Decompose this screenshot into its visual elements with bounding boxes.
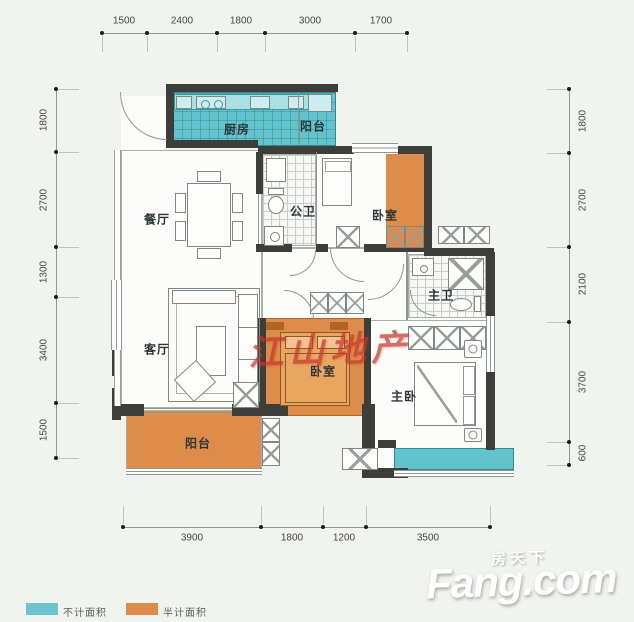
basin-bowl [270,232,280,242]
dimension-line [123,527,490,528]
extension-line [59,247,79,248]
dimension-tick [215,31,219,35]
dimension-tick [405,31,409,35]
wardrobe-cell [405,226,424,248]
wall-line [258,194,259,248]
extension-line [547,442,567,443]
extension-line [355,36,356,52]
nightstand [464,340,482,358]
window [111,280,122,350]
fang-logo-wordmark: Fang.com [425,554,617,609]
kitchen-sink [250,96,270,109]
kitchen-balcony-divider [298,92,299,144]
dimension-tick [54,456,58,460]
legend-swatch-half-counted [126,603,158,615]
closet-cell [328,292,346,314]
closet-cell [310,292,328,314]
extension-line [59,403,79,404]
dining-chair [175,193,186,213]
column-cell [262,418,280,442]
nightstand [464,428,482,442]
extension-line [490,506,491,524]
wall-line [406,252,408,320]
dimension-tick [364,525,368,529]
dimension-tick [488,525,492,529]
dimension-tick [567,87,571,91]
stove-burner [201,100,210,109]
dimension-label: 3000 [299,16,321,27]
dimension-label: 1300 [39,261,50,283]
dining-chair [232,221,243,241]
extension-line [102,36,103,52]
extension-line [59,458,79,459]
balcony-window-rail [126,468,262,475]
pillow [325,161,351,172]
dimension-tick [567,320,571,324]
extension-line [147,36,148,52]
wall-segment [120,404,144,416]
extension-line [407,36,408,52]
sofa-top [172,290,236,304]
wall-segment [424,146,432,256]
dimension-tick [54,401,58,405]
dimension-label: 1800 [39,109,50,131]
extension-line [261,506,262,524]
dimension-label: 2700 [578,189,589,211]
dimension-label: 600 [578,445,589,462]
basin-bowl [420,265,428,273]
dimension-label: 2400 [171,16,193,27]
closet-cell [346,292,364,314]
fang-logo: 房天下 Fang.com [425,542,627,619]
dining-chair [232,193,243,213]
room-label-living: 客厅 [144,341,170,358]
floorplan-image: 1500 2400 1800 3000 1700 1800 2700 1300 … [0,0,634,622]
dining-chair [197,171,221,182]
wardrobe-cell [336,226,360,248]
extension-line [123,506,124,524]
pillow [463,396,475,425]
bay-window-area [394,448,514,470]
dimension-tick [567,245,571,249]
dimension-label: 1200 [333,533,355,544]
kitchen-cabinet [288,96,304,109]
wall-segment [486,252,495,316]
toilet-tank [474,296,481,312]
extension-line [547,247,567,248]
extension-line [547,153,567,154]
extension-line [59,89,79,90]
wall-segment [166,84,174,142]
extension-line [323,506,324,524]
pillow [463,366,475,395]
window [486,316,495,372]
dimension-label: 1800 [230,16,252,27]
kitchen-cabinet [176,96,192,109]
legend-swatch-not-counted [26,603,58,615]
stove-burner [214,100,223,109]
cabinet-cell [464,226,490,244]
dining-chair [197,248,221,259]
extension-line [217,36,218,52]
dimension-tick [54,150,58,154]
extension-line [366,506,367,524]
cabinet-cell [438,226,464,244]
wardrobe-cell [434,326,460,350]
sliding-door-line [144,408,232,409]
dimension-label: 1500 [39,419,50,441]
ac-unit-box [342,448,378,470]
sliding-door-line [144,412,232,413]
dimension-line [569,89,570,465]
shower [448,258,484,290]
stove [196,96,226,109]
extension-line [59,297,79,298]
exterior-wall-thin [114,150,121,406]
wall-segment [486,372,495,450]
room-label-master-bedroom: 主卧 [391,388,417,405]
room-label-dining: 餐厅 [144,211,170,228]
room-label-kitchen: 厨房 [224,121,250,138]
wall-segment [166,140,258,148]
bay-window-rail [394,470,514,477]
extension-line [265,36,266,52]
extension-line [547,89,567,90]
dimension-label: 1700 [370,16,392,27]
dimension-label: 1500 [113,16,135,27]
dimension-label: 2700 [39,189,50,211]
blanket-fold [417,365,457,423]
fridge [308,94,332,112]
tv-cabinet [233,382,259,408]
washing-machine [266,158,286,182]
dimension-tick [54,245,58,249]
dimension-label: 3900 [181,533,203,544]
dimension-label: 3700 [578,371,589,393]
extension-line [547,322,567,323]
agency-watermark: 江山地产 [247,319,413,376]
wardrobe-cell [386,226,405,248]
toilet [268,196,284,214]
extension-line [547,465,567,466]
dimension-tick [353,31,357,35]
wall-segment [424,248,494,256]
room-label-master-bath: 主卫 [428,287,454,304]
wall-segment [256,152,263,194]
room-label-public-bath: 公卫 [290,203,316,220]
master-bed [414,362,476,426]
room-label-balcony-top: 阳台 [300,118,326,135]
dimension-label: 1800 [578,110,589,132]
dimension-tick [259,525,263,529]
dining-chair [175,221,186,241]
wall-segment [378,440,396,448]
room-label-balcony-bottom: 阳台 [185,435,211,452]
dimension-label: 2100 [578,273,589,295]
dimension-tick [54,87,58,91]
dimension-tick [321,525,325,529]
extension-line [59,152,79,153]
washbasin [412,258,434,276]
toilet-tank [268,188,284,195]
dimension-tick [54,295,58,299]
dimension-label: 3500 [417,533,439,544]
dimension-tick [121,525,125,529]
bedroom-top-bed [322,158,352,206]
window [352,143,398,153]
dimension-tick [100,31,104,35]
legend-label-not-counted: 不计面积 [63,604,107,619]
dimension-tick [567,151,571,155]
dimension-tick [567,463,571,467]
wall-segment [166,84,338,92]
column-cell [262,442,280,466]
dimension-tick [567,440,571,444]
room-label-bedroom-top: 卧室 [372,207,398,224]
wall-segment [316,244,328,252]
dimension-label: 3400 [39,339,50,361]
dimension-tick [263,31,267,35]
dining-table [187,183,231,247]
wall-line [316,152,317,246]
wall-segment [258,146,354,154]
dimension-tick [145,31,149,35]
dimension-label: 1800 [281,533,303,544]
legend-label-half-counted: 半计面积 [163,604,207,619]
washbasin [264,226,284,246]
